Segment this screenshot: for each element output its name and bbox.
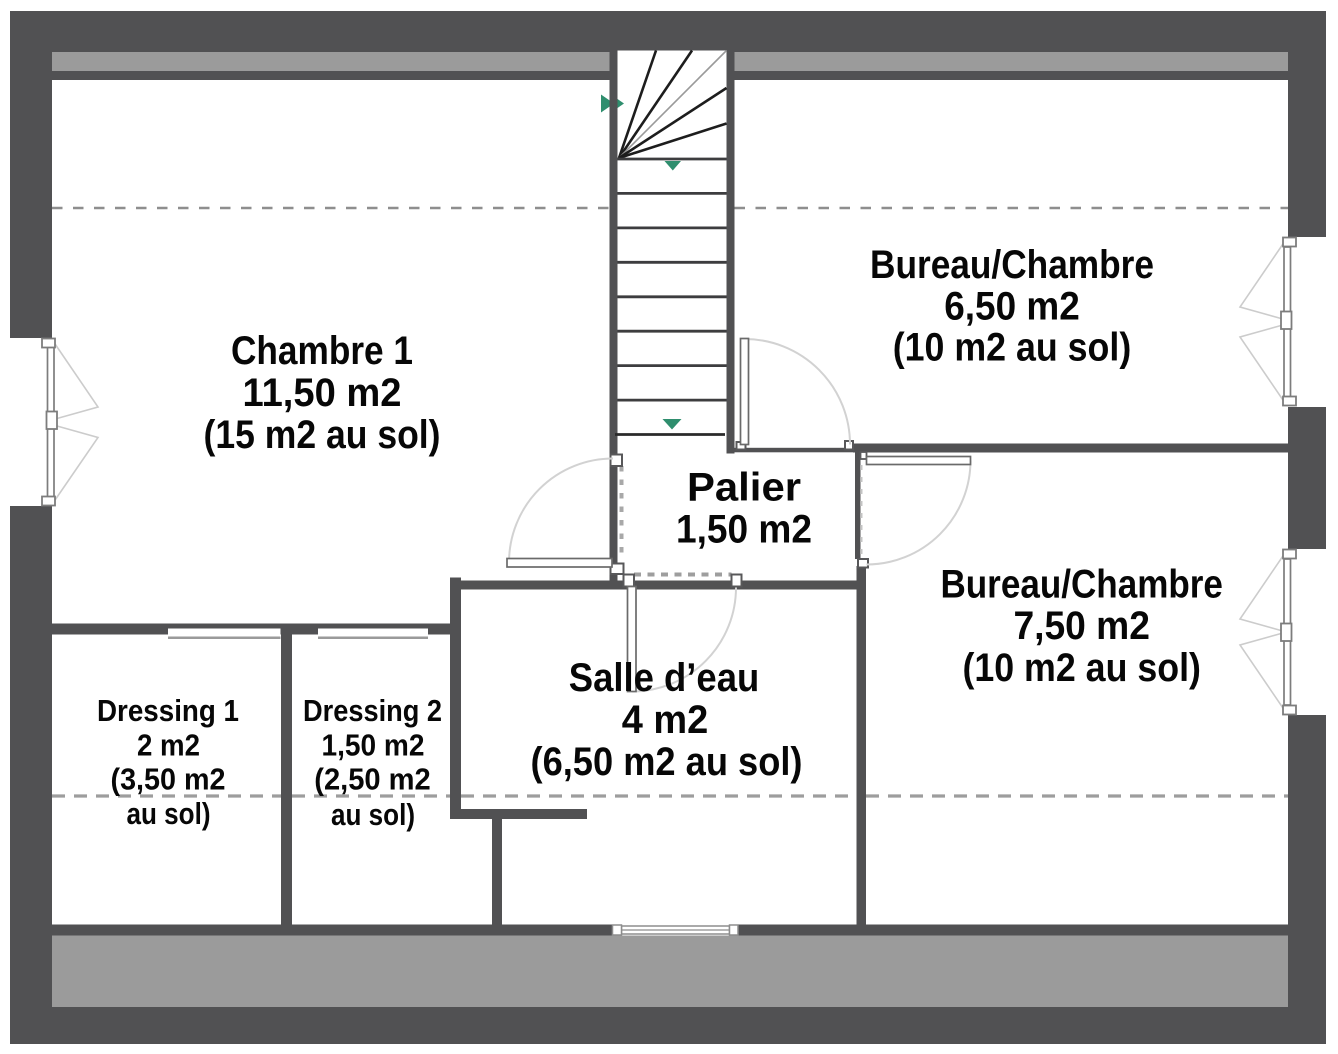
svg-text:(10 m2 au sol): (10 m2 au sol) [893, 326, 1132, 370]
svg-text:(10 m2 au sol): (10 m2 au sol) [962, 646, 1201, 690]
svg-text:(6,50 m2 au sol): (6,50 m2 au sol) [531, 740, 803, 784]
svg-text:Palier: Palier [687, 466, 801, 510]
svg-text:7,50 m2: 7,50 m2 [1013, 604, 1150, 648]
svg-text:2 m2: 2 m2 [137, 727, 200, 762]
svg-text:(2,50 m2: (2,50 m2 [314, 762, 431, 797]
svg-text:4 m2: 4 m2 [622, 698, 709, 742]
svg-text:Salle d’eau: Salle d’eau [569, 656, 760, 700]
svg-text:au sol): au sol) [127, 796, 211, 831]
svg-text:Bureau/Chambre: Bureau/Chambre [870, 243, 1154, 287]
svg-text:Bureau/Chambre: Bureau/Chambre [940, 563, 1223, 607]
svg-text:(3,50 m2: (3,50 m2 [111, 762, 226, 797]
svg-text:(15 m2 au sol): (15 m2 au sol) [204, 413, 441, 457]
svg-text:6,50 m2: 6,50 m2 [944, 285, 1080, 329]
svg-text:Dressing 2: Dressing 2 [303, 693, 442, 728]
svg-text:Chambre 1: Chambre 1 [231, 329, 413, 373]
svg-text:1,50 m2: 1,50 m2 [676, 508, 812, 552]
svg-text:au sol): au sol) [331, 797, 415, 832]
svg-text:Dressing 1: Dressing 1 [97, 693, 239, 728]
svg-text:1,50 m2: 1,50 m2 [322, 727, 425, 762]
svg-text:11,50 m2: 11,50 m2 [243, 371, 402, 415]
